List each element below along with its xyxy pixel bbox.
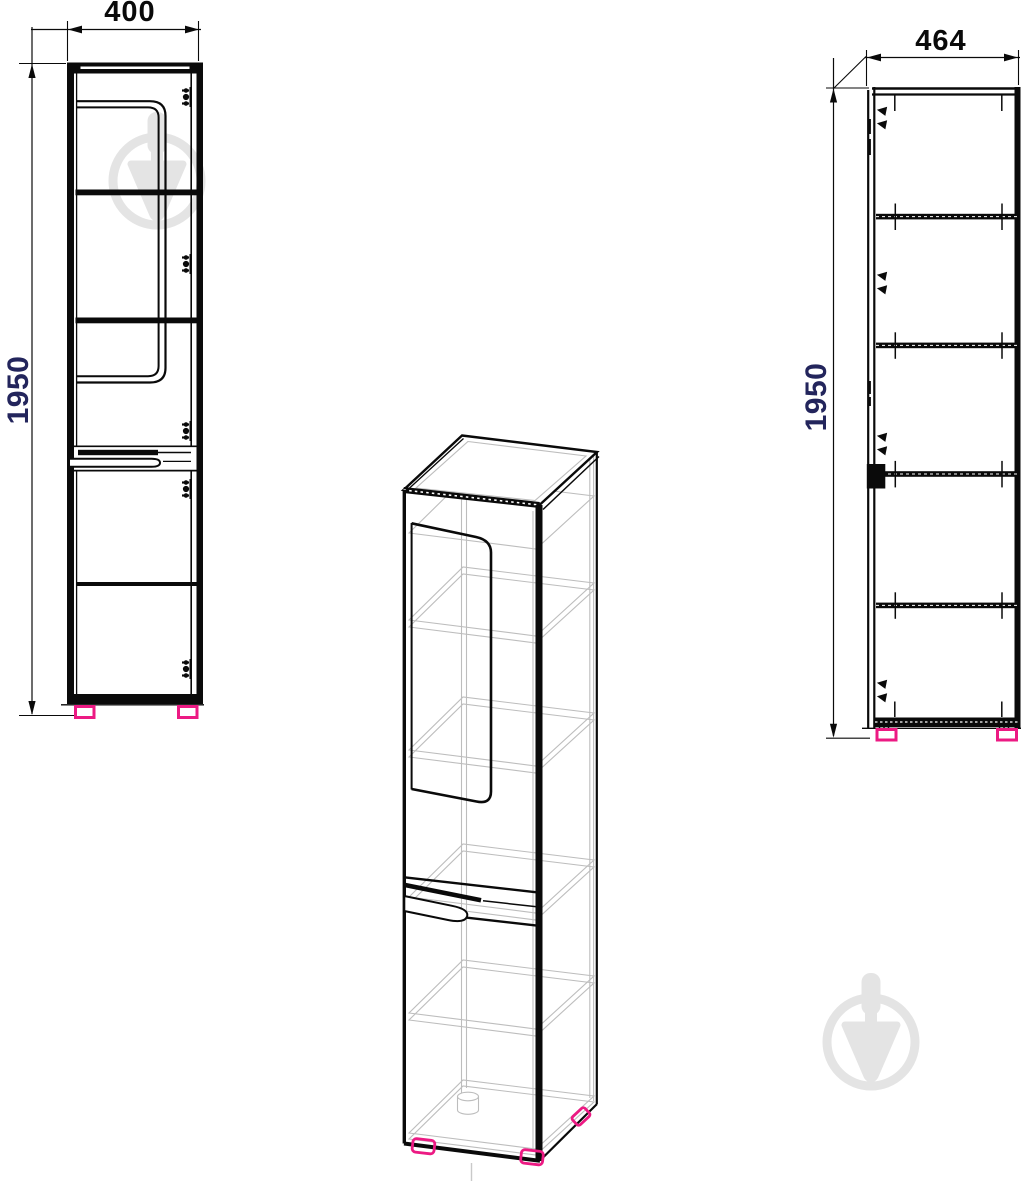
trowel-in-circle-watermark-icon bbox=[113, 112, 201, 225]
iso-view bbox=[404, 436, 600, 1166]
front-height-label: 1950 bbox=[2, 356, 35, 425]
trowel-in-circle-watermark-icon bbox=[827, 973, 915, 1086]
hinge-plate bbox=[867, 464, 886, 489]
side-view: 464 1950 bbox=[800, 25, 1021, 740]
hinge-mark-icon bbox=[182, 87, 191, 107]
iso-door-groove bbox=[412, 523, 491, 802]
side-width-label: 464 bbox=[915, 25, 966, 57]
iso-shelf bbox=[409, 567, 594, 636]
foot-left bbox=[877, 730, 896, 741]
foot-right bbox=[998, 730, 1017, 741]
side-height-label: 1950 bbox=[800, 363, 833, 432]
shelf-line bbox=[76, 190, 197, 196]
handle-profile bbox=[69, 446, 197, 470]
hinge-mark-icon bbox=[182, 659, 191, 679]
dimension-arrow bbox=[185, 26, 199, 34]
front-width-dimension: 400 bbox=[31, 0, 201, 61]
iso-shelf bbox=[409, 697, 594, 766]
dimension-arrow bbox=[28, 64, 35, 78]
pin-arrow-icon bbox=[878, 108, 887, 129]
iso-handle-profile bbox=[404, 877, 539, 926]
dimension-arrow bbox=[830, 724, 837, 738]
dimension-arrow bbox=[28, 701, 35, 715]
foot-left bbox=[76, 707, 95, 718]
iso-shelf bbox=[409, 960, 594, 1029]
shelf-line bbox=[76, 318, 197, 324]
iso-interior-wireframe bbox=[409, 442, 594, 1155]
watermark-bottom-right bbox=[827, 973, 915, 1086]
dimension-arrow bbox=[830, 89, 837, 103]
side-shelves bbox=[876, 204, 1019, 619]
hinge-marks bbox=[182, 87, 191, 679]
side-width-dimension: 464 bbox=[834, 25, 1021, 89]
foot-right bbox=[179, 707, 198, 718]
technical-drawing-page: 400 1950 bbox=[0, 0, 1025, 1181]
watermark-top-left bbox=[113, 112, 201, 225]
pin-arrow-icon bbox=[878, 273, 887, 294]
hinge-pin-arrows bbox=[878, 108, 887, 702]
dimension-arrow bbox=[1004, 54, 1018, 62]
dimension-arrow bbox=[867, 54, 881, 62]
dimension-arrow bbox=[68, 26, 82, 34]
front-width-label: 400 bbox=[104, 0, 155, 28]
pin-arrow-icon bbox=[878, 434, 887, 455]
hinge-mark-icon bbox=[182, 254, 191, 274]
cabinet-drawing-canvas: 400 1950 bbox=[0, 0, 1025, 1181]
pin-arrow-icon bbox=[878, 681, 887, 702]
hinge-mark-icon bbox=[182, 479, 191, 499]
foot-back-right bbox=[571, 1107, 591, 1127]
front-view: 400 1950 bbox=[2, 0, 204, 718]
side-cabinet-body bbox=[862, 87, 1021, 740]
side-height-dimension: 1950 bbox=[800, 58, 870, 738]
front-height-dimension: 1950 bbox=[2, 27, 77, 716]
shelf-line bbox=[76, 582, 197, 586]
hinge-mark-icon bbox=[182, 421, 191, 441]
leg-cylinder bbox=[458, 1092, 479, 1114]
